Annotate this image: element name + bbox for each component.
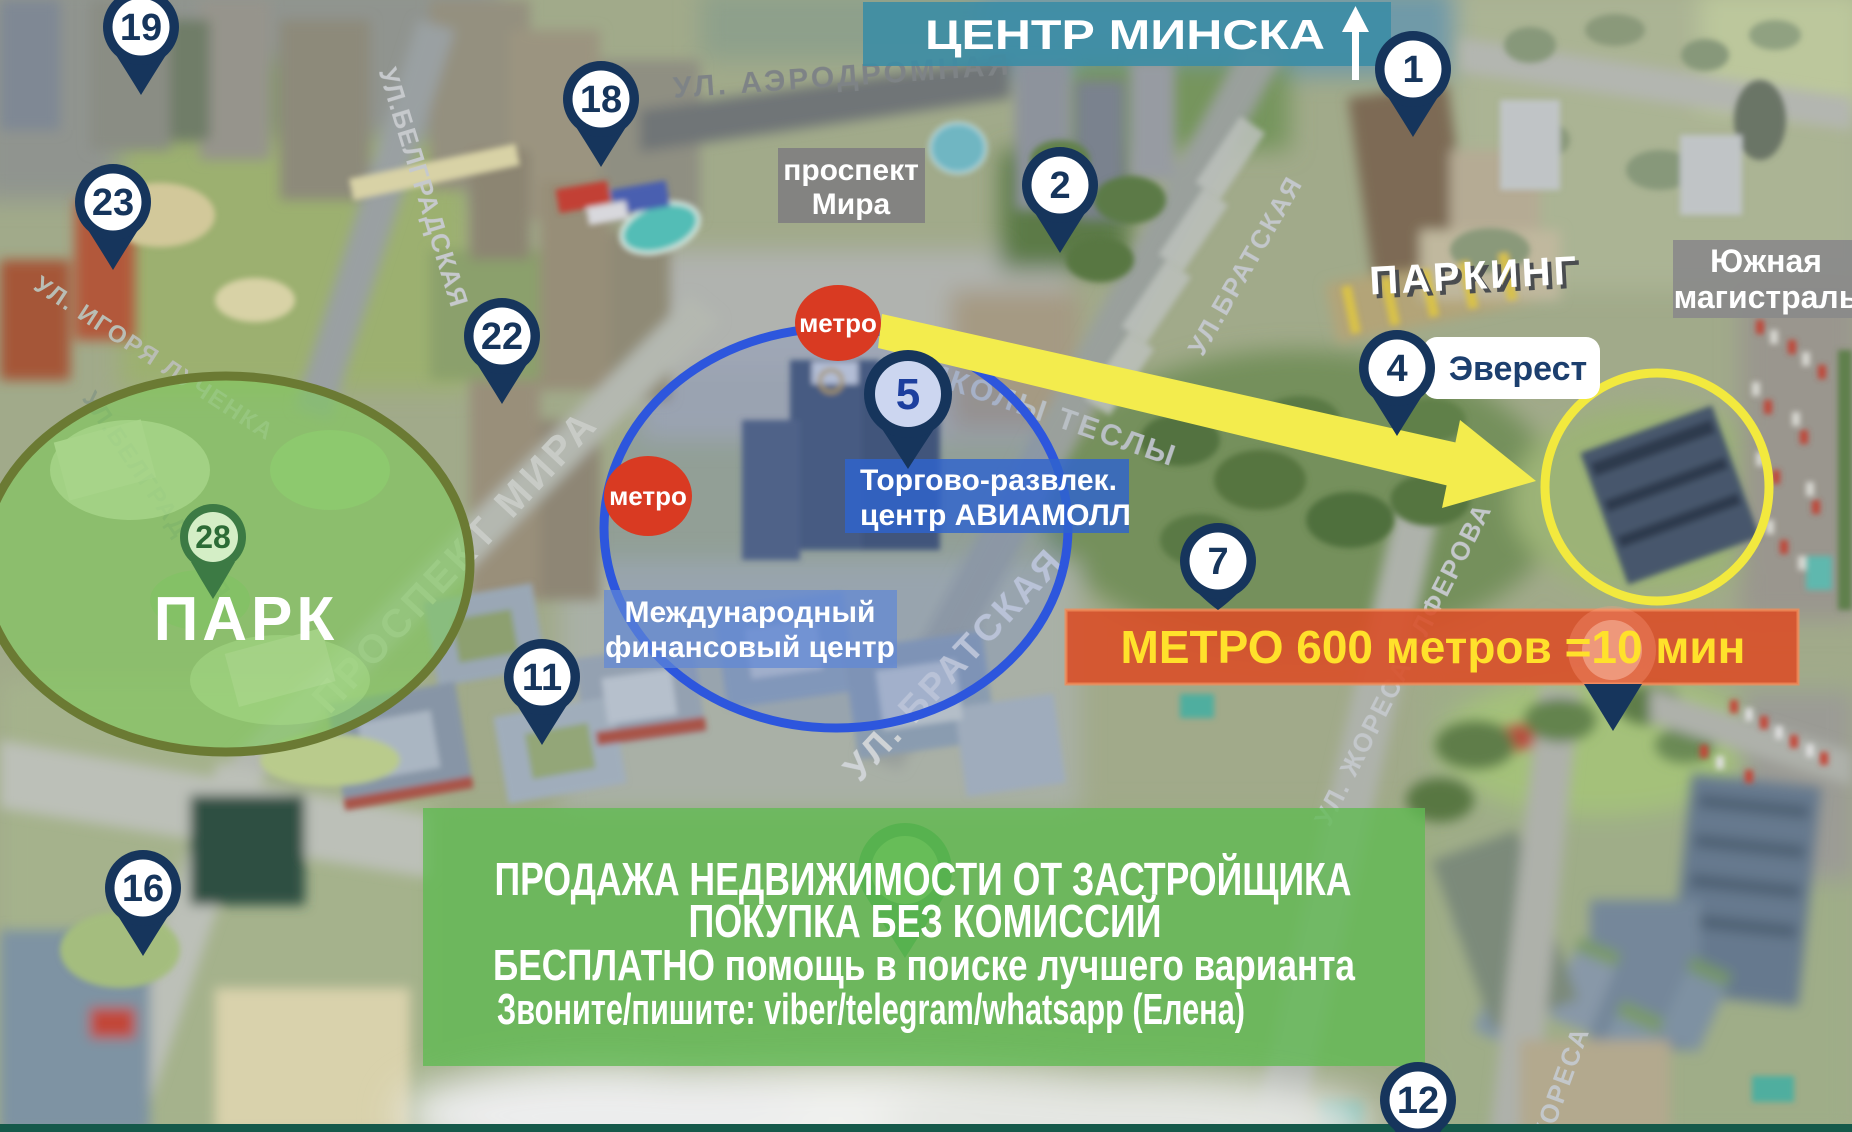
svg-text:проспект: проспект bbox=[783, 154, 919, 187]
svg-text:ПАРК: ПАРК bbox=[154, 585, 339, 654]
svg-text:12: 12 bbox=[1397, 1080, 1439, 1122]
svg-text:18: 18 bbox=[580, 79, 622, 121]
svg-text:16: 16 bbox=[122, 868, 164, 910]
svg-text:магистраль: магистраль bbox=[1674, 279, 1852, 315]
svg-text:7: 7 bbox=[1207, 541, 1228, 583]
svg-text:ПОКУПКА БЕЗ КОМИССИЙ: ПОКУПКА БЕЗ КОМИССИЙ bbox=[689, 895, 1162, 947]
svg-text:финансовый центр: финансовый центр bbox=[605, 631, 895, 664]
svg-text:БЕСПЛАТНО помощь в поиске лучш: БЕСПЛАТНО помощь в поиске лучшего вариан… bbox=[493, 941, 1355, 990]
svg-text:метро: метро bbox=[799, 308, 877, 338]
svg-text:5: 5 bbox=[896, 370, 920, 419]
svg-text:22: 22 bbox=[481, 316, 523, 358]
svg-text:Эверест: Эверест bbox=[1449, 350, 1587, 388]
svg-text:19: 19 bbox=[120, 7, 162, 49]
svg-text:ЦЕНТР МИНСКА: ЦЕНТР МИНСКА bbox=[925, 11, 1325, 58]
svg-text:28: 28 bbox=[195, 519, 231, 555]
svg-text:Международный: Международный bbox=[625, 596, 876, 629]
svg-text:Торгово-развлек.: Торгово-развлек. bbox=[860, 464, 1117, 497]
svg-text:11: 11 bbox=[522, 657, 562, 699]
svg-text:2: 2 bbox=[1049, 165, 1070, 207]
svg-text:центр АВИАМОЛЛ: центр АВИАМОЛЛ bbox=[860, 499, 1131, 532]
svg-text:Мира: Мира bbox=[812, 188, 891, 221]
svg-text:Южная: Южная bbox=[1710, 243, 1822, 279]
svg-text:23: 23 bbox=[92, 182, 134, 224]
svg-text:МЕТРО 600 метров =10 мин: МЕТРО 600 метров =10 мин bbox=[1121, 621, 1746, 673]
svg-text:4: 4 bbox=[1386, 348, 1407, 390]
svg-text:метро: метро bbox=[609, 481, 687, 511]
svg-text:Звоните/пишите: viber/telegram: Звоните/пишите: viber/telegram/whatsapp … bbox=[497, 985, 1245, 1034]
svg-text:1: 1 bbox=[1402, 49, 1423, 91]
